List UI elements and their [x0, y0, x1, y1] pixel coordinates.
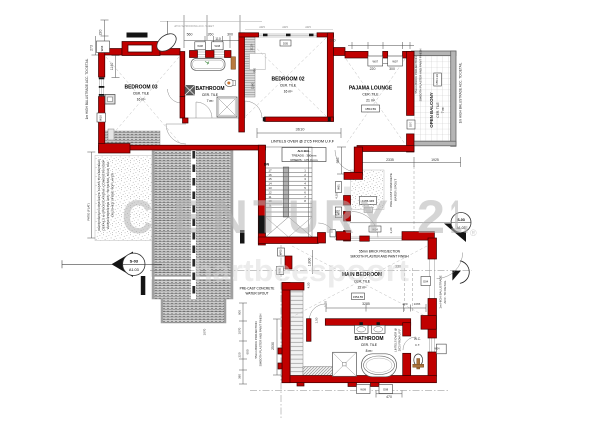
svg-text:W08: W08 [215, 44, 221, 48]
svg-text:7 m²: 7 m² [207, 99, 215, 103]
svg-text:1m HIGH BALUSTRADE ACC. TO DET: 1m HIGH BALUSTRADE ACC. TO DETAIL [85, 58, 89, 119]
svg-text:DN: DN [264, 162, 270, 166]
svg-text:17: 17 [268, 168, 272, 172]
svg-text:W08: W08 [100, 45, 104, 51]
svg-text:2,20: 2,20 [389, 227, 393, 233]
svg-text:2: 2 [417, 190, 445, 243]
svg-text:U: U [288, 190, 319, 243]
svg-text:1,10: 1,10 [324, 301, 328, 307]
svg-text:2335: 2335 [386, 158, 394, 162]
svg-text:W07: W07 [373, 60, 379, 64]
svg-text:600: 600 [246, 349, 250, 354]
svg-text:hartbeespoort: hartbeespoort [193, 253, 409, 288]
svg-text:16 m²: 16 m² [284, 90, 294, 94]
svg-text:7 m²: 7 m² [441, 107, 445, 113]
svg-text:ALU.BAL.: ALU.BAL. [297, 149, 310, 153]
svg-text:R: R [324, 190, 354, 243]
svg-text:WATERPROOFING ACC. TO DETAIL 3: WATERPROOFING ACC. TO DETAIL 30mm DIA. [106, 161, 110, 229]
svg-text:D08: D08 [383, 388, 388, 392]
svg-text:W.C.: W.C. [414, 337, 421, 341]
svg-text:W07: W07 [392, 60, 398, 64]
svg-text:CER. TILE: CER. TILE [280, 84, 297, 88]
svg-text:220: 220 [238, 352, 242, 357]
svg-text:WATER SPOUT: WATER SPOUT [245, 292, 268, 296]
svg-text:ACC. TO DETAIL: ACC. TO DETAIL [443, 280, 447, 304]
svg-text:21 m²: 21 m² [366, 99, 376, 103]
svg-text:uPVC WPROOFING ACC. SHEET: uPVC WPROOFING ACC. SHEET [174, 24, 214, 28]
svg-text:BATHROOM: BATHROOM [195, 86, 224, 92]
svg-text:BATHROOM: BATHROOM [354, 336, 383, 342]
svg-text:220: 220 [370, 67, 376, 71]
svg-text:220: 220 [99, 30, 103, 36]
svg-text:1554.59: 1554.59 [365, 107, 376, 111]
svg-text:CER. TILE: CER. TILE [361, 343, 378, 347]
svg-text:560: 560 [187, 33, 193, 37]
svg-text:CER. TILE: CER. TILE [133, 92, 150, 96]
svg-text:260: 260 [208, 33, 214, 37]
svg-text:700: 700 [253, 68, 257, 73]
svg-text:1: 1 [450, 190, 462, 243]
svg-text:S-03: S-03 [130, 258, 139, 263]
svg-text:1,50: 1,50 [315, 317, 319, 323]
svg-text:3285: 3285 [362, 302, 370, 306]
svg-text:600: 600 [238, 310, 242, 315]
svg-text:D05: D05 [283, 42, 288, 46]
svg-text:TREADS : 300mm: TREADS : 300mm [292, 153, 317, 157]
svg-text:CER. TILE: CER. TILE [362, 93, 379, 97]
svg-text:CRUSHED STONE TOP LAYER: CRUSHED STONE TOP LAYER [111, 172, 115, 217]
svg-text:Y: Y [359, 190, 388, 243]
svg-text:W09: W09 [360, 388, 366, 392]
svg-text:1190: 1190 [251, 82, 255, 89]
svg-text:1065: 1065 [414, 302, 421, 306]
svg-text:16: 16 [268, 173, 272, 177]
svg-text:DETAILS & SPECIFICATIONS. CONC: DETAILS & SPECIFICATIONS. CONCRETE ROOF [102, 159, 106, 230]
svg-text:1554.39: 1554.39 [435, 74, 439, 85]
svg-text:W08: W08 [197, 44, 203, 48]
svg-text:380: 380 [238, 374, 242, 379]
svg-text:110: 110 [215, 37, 221, 41]
svg-text:300: 300 [389, 67, 395, 71]
svg-text:300: 300 [227, 33, 233, 37]
svg-text:REINFORCED CONCRETE SLABS TO E: REINFORCED CONCRETE SLABS TO ENGINEER [97, 158, 101, 230]
svg-text:2530: 2530 [271, 342, 275, 350]
svg-text:16 m²: 16 m² [137, 98, 147, 102]
svg-text:470: 470 [386, 395, 392, 399]
svg-text:PATIO (FLAT): PATIO (FLAT) [87, 203, 91, 220]
svg-text:.: . [463, 190, 469, 243]
svg-text:1925: 1925 [431, 158, 439, 162]
svg-text:T: T [253, 190, 283, 243]
svg-text:D04: D04 [423, 280, 428, 284]
svg-text:520: 520 [330, 39, 336, 43]
svg-text:WATER SPOUT: WATER SPOUT [394, 179, 398, 201]
svg-text:1110: 1110 [250, 44, 254, 51]
svg-text:1m HIGH BALUSTRADE ACC. TO DET: 1m HIGH BALUSTRADE ACC. TO DETAIL [459, 62, 463, 123]
svg-text:15: 15 [268, 177, 272, 181]
svg-text:1554.55: 1554.55 [353, 295, 364, 299]
svg-text:D07: D07 [409, 122, 413, 127]
svg-text:273: 273 [90, 45, 94, 51]
svg-text:8 m²: 8 m² [366, 349, 374, 353]
svg-text:1140: 1140 [110, 63, 114, 71]
svg-text:LINTELS OVER @ 2'C5 FROM U.F.F: LINTELS OVER @ 2'C5 FROM U.F.F [271, 139, 335, 143]
svg-text:1070: 1070 [203, 328, 207, 335]
svg-text:PRE-CAST CONCRETE: PRE-CAST CONCRETE [389, 173, 393, 207]
svg-text:W04: W04 [435, 348, 441, 351]
svg-text:BEDROOM 03: BEDROOM 03 [124, 85, 157, 91]
svg-text:55mm BRICK PROJECTION: 55mm BRICK PROJECTION [414, 56, 418, 93]
svg-text:14: 14 [268, 182, 272, 186]
svg-text:CER. TILE: CER. TILE [436, 102, 440, 117]
svg-text:1070: 1070 [238, 327, 242, 334]
svg-text:55mm BRICK PROJECTION: 55mm BRICK PROJECTION [254, 321, 258, 358]
svg-text:W01: W01 [337, 184, 341, 190]
svg-text:3610: 3610 [296, 126, 306, 131]
svg-text:CER. TILE: CER. TILE [202, 93, 219, 97]
svg-text:®: ® [470, 228, 477, 238]
svg-text:1m HIGH BALUSTRADE: 1m HIGH BALUSTRADE [439, 275, 443, 308]
svg-text:N: N [212, 190, 248, 243]
svg-text:2/C5 FROM U.F.F: 2/C5 FROM U.F.F [398, 329, 402, 352]
svg-text:AW3: AW3 [305, 25, 311, 29]
svg-text:985: 985 [336, 158, 340, 164]
svg-text:C: C [122, 190, 153, 243]
svg-text:220: 220 [402, 302, 407, 306]
svg-text:AW3: AW3 [259, 25, 265, 29]
svg-text:C.T.: C.T. [415, 343, 420, 347]
svg-text:A1.03: A1.03 [129, 268, 139, 272]
svg-text:SMOOTH PLASTER AND PAINT FINIS: SMOOTH PLASTER AND PAINT FINISH [259, 314, 263, 367]
svg-text:OPEN BALCONY: OPEN BALCONY [429, 92, 434, 127]
svg-text:AW3: AW3 [282, 25, 288, 29]
svg-text:BEDROOM 02: BEDROOM 02 [271, 77, 304, 83]
svg-text:W10: W10 [99, 115, 103, 121]
svg-text:E: E [173, 190, 203, 243]
svg-text:SMOOTH PLASTER AND PAINT FINIS: SMOOTH PLASTER AND PAINT FINISH [419, 49, 423, 102]
svg-text:PAJAMA LOUNGE: PAJAMA LOUNGE [349, 86, 393, 92]
